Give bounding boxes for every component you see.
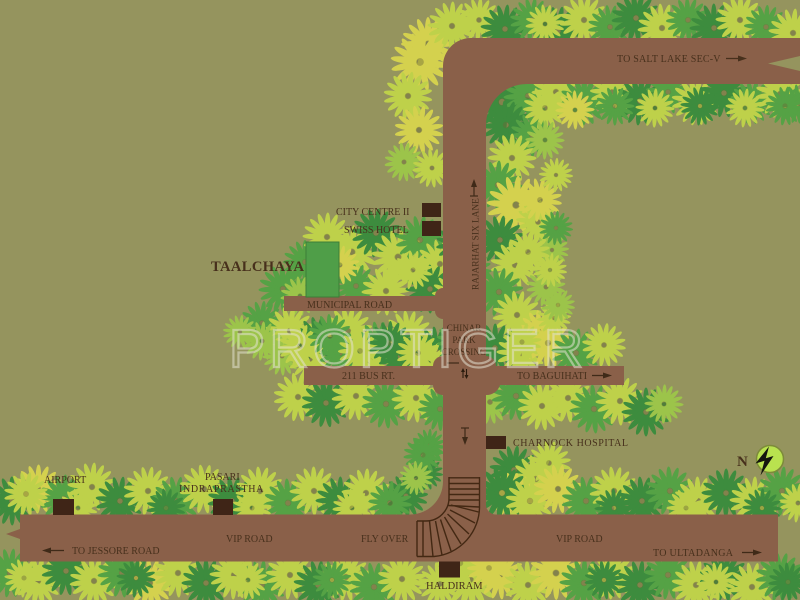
svg-text:PROPTIGER: PROPTIGER (229, 319, 588, 379)
svg-text:FLY OVER: FLY OVER (361, 534, 409, 545)
svg-text:VIP ROAD: VIP ROAD (226, 534, 273, 545)
svg-text:TAALCHAYA: TAALCHAYA (211, 259, 305, 275)
svg-text:RAJARHAT SIX LANE: RAJARHAT SIX LANE (472, 198, 482, 290)
svg-text:SWISS HOTEL: SWISS HOTEL (344, 225, 409, 236)
svg-text:HALDIRAM: HALDIRAM (426, 581, 483, 592)
svg-text:PASARI: PASARI (205, 472, 240, 483)
svg-text:AIRPORT: AIRPORT (44, 475, 86, 486)
svg-text:MUNICIPAL ROAD: MUNICIPAL ROAD (307, 300, 392, 311)
svg-text:CHARNOCK HOSPITAL: CHARNOCK HOSPITAL (513, 438, 629, 449)
svg-text:TO ULTADANGA: TO ULTADANGA (653, 548, 734, 559)
svg-text:INDRAPRASTHA: INDRAPRASTHA (179, 484, 264, 495)
svg-text:CITY CENTRE II: CITY CENTRE II (336, 207, 410, 218)
svg-text:N: N (737, 454, 748, 470)
svg-text:TO SALT LAKE SEC-V: TO SALT LAKE SEC-V (617, 54, 721, 65)
svg-text:TO JESSORE ROAD: TO JESSORE ROAD (72, 546, 160, 557)
svg-text:VIP ROAD: VIP ROAD (556, 534, 603, 545)
